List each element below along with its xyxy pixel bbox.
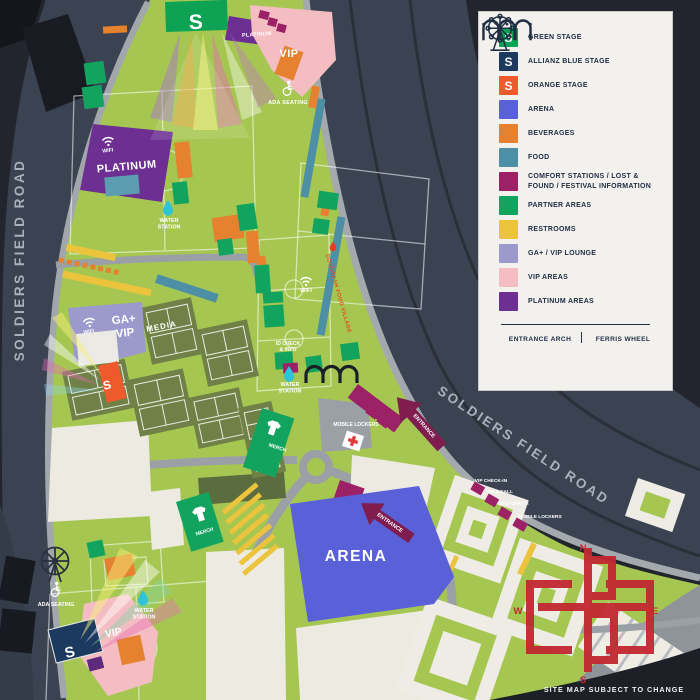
map-label-vip-top: VIP (279, 48, 298, 60)
legend-item-comfort-stations-lost-found-festival-information: COMFORT STATIONS / LOST & FOUND / FESTIV… (499, 172, 664, 191)
map-label-wifi-platinum: WIFI (102, 147, 114, 154)
legend-item-label: PARTNER AREAS (528, 201, 664, 210)
legend-item-restrooms: RESTROOMS (499, 220, 664, 239)
legend-item-platinum-areas: PLATINUM AREAS (499, 292, 664, 311)
legend-swatch (499, 268, 518, 287)
legend-swatch (499, 196, 518, 215)
legend-item-label: BEVERAGES (528, 129, 664, 138)
map-label-will-call: WILL CALL (487, 489, 513, 495)
legend-item-label: ORANGE STAGE (528, 81, 664, 90)
legend-swatch (499, 172, 518, 191)
map-label-compass-n: N (580, 543, 587, 554)
map-label-arena: ARENA (325, 548, 388, 565)
stage-s-icon: S (504, 56, 512, 68)
legend-item-label: GREEN STAGE (528, 33, 664, 42)
legend-swatch (499, 220, 518, 239)
map-label-compass-w: W (514, 606, 523, 617)
legend-panel: SGREEN STAGESALLIANZ BLUE STAGESORANGE S… (478, 11, 673, 391)
map-label-ada-top: ADA SEATING (268, 100, 308, 106)
legend-item-vip-areas: VIP AREAS (499, 268, 664, 287)
legend-item-arena: ARENA (499, 100, 664, 119)
legend-item-label: FOOD (528, 153, 664, 162)
legend-item-ga-vip-lounge: GA+ / VIP LOUNGE (499, 244, 664, 263)
legend-ferris-wheel-label: FERRIS WHEEL (596, 336, 651, 343)
legend-item-label: ARENA (528, 105, 664, 114)
legend-item-label: PLATINUM AREAS (528, 297, 664, 306)
ferris-wheel-icon (479, 12, 521, 54)
legend-item-partner-areas: PARTNER AREAS (499, 196, 664, 215)
legend-divider (501, 324, 650, 325)
legend-item-food: FOOD (499, 148, 664, 167)
map-label-mobile-lockers-2: MOBILE LOCKERS (518, 514, 562, 520)
map-label-water-3: WATERSTATION (133, 608, 156, 620)
legend-ferris-wheel: FERRIS WHEEL (582, 332, 664, 343)
legend-swatch (499, 244, 518, 263)
legend-item-orange-stage: SORANGE STAGE (499, 76, 664, 95)
legend-swatch (499, 148, 518, 167)
map-label-road-left: SOLDIERS FIELD ROAD (12, 159, 27, 362)
legend-item-label: RESTROOMS (528, 225, 664, 234)
legend-item-label: GA+ / VIP LOUNGE (528, 249, 664, 258)
legend-item-beverages: BEVERAGES (499, 124, 664, 143)
legend-item-label: COMFORT STATIONS / LOST & FOUND / FESTIV… (528, 172, 664, 190)
legend-swatch: S (499, 52, 518, 71)
stage-s-icon: S (504, 80, 512, 92)
legend-item-allianz-blue-stage: SALLIANZ BLUE STAGE (499, 52, 664, 71)
legend-swatch (499, 124, 518, 143)
map-label-vip-check-in: VIP CHECK-IN (475, 478, 508, 484)
legend-item-label: VIP AREAS (528, 273, 664, 282)
legend-swatch (499, 100, 518, 119)
map-label-wifi-field: WIFI (300, 288, 312, 294)
roundabout (303, 454, 329, 480)
map-label-box-office: BOX OFFICE (499, 501, 529, 507)
map-label-ada-2: ADA SEATING (38, 602, 75, 608)
map-label-site-note: SITE MAP SUBJECT TO CHANGE (544, 685, 684, 694)
map-label-green-stage-s: S (188, 11, 203, 34)
legend-items: SGREEN STAGESALLIANZ BLUE STAGESORANGE S… (499, 28, 664, 311)
map-label-compass-e: E (652, 606, 658, 617)
legend-swatch (499, 292, 518, 311)
map-label-mobile-lockers-1: MOBILE LOCKERS (333, 422, 379, 428)
legend-item-label: ALLIANZ BLUE STAGE (528, 57, 664, 66)
legend-entrance-arch: ENTRANCE ARCH (499, 332, 582, 343)
legend-swatch: S (499, 76, 518, 95)
festival-site-map: SOLDIERS FIELD ROADSOLDIERS FIELD ROADSS… (0, 0, 700, 700)
legend-entrance-arch-label: ENTRANCE ARCH (509, 336, 571, 343)
map-label-water-2: WATERSTATION (279, 382, 302, 394)
legend-footer: ENTRANCE ARCH FERRIS WHEEL (499, 332, 664, 343)
map-label-water-1: WATERSTATION (158, 218, 181, 230)
